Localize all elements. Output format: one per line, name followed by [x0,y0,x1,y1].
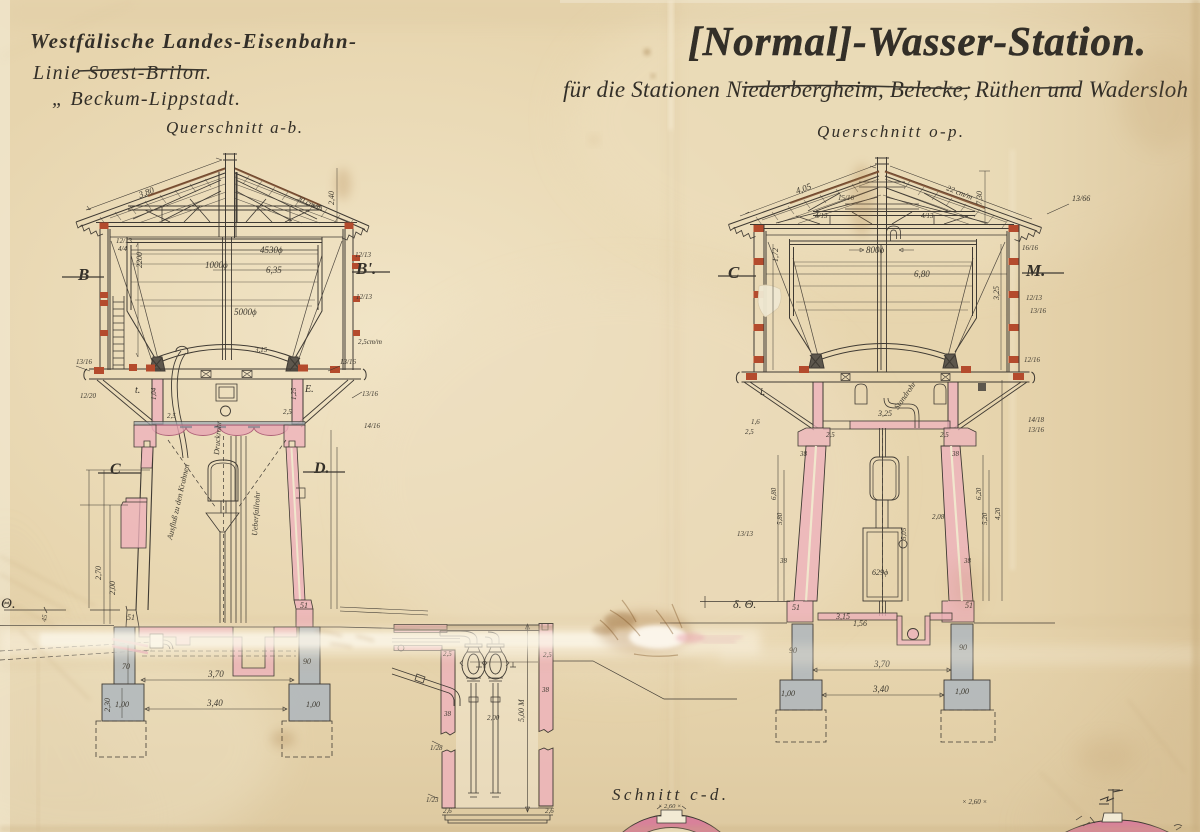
svg-text:4530ϕ: 4530ϕ [260,245,283,255]
svg-text:2,00: 2,00 [108,581,117,595]
svg-text:3,25: 3,25 [992,286,1001,301]
svg-text:13/16: 13/16 [1028,426,1044,434]
svg-text:2,6: 2,6 [545,807,554,815]
svg-text:38: 38 [443,710,452,718]
svg-text:38: 38 [779,557,788,565]
svg-text:13/16: 13/16 [362,390,378,398]
svg-text:1,25: 1,25 [290,387,298,400]
svg-text:5,00 M: 5,00 M [517,698,526,722]
svg-text:6,80: 6,80 [770,487,778,500]
svg-text:1,72: 1,72 [771,248,780,262]
svg-text:1/28: 1/28 [430,744,443,752]
svg-text:13/16: 13/16 [340,358,356,366]
svg-text:16/16: 16/16 [1022,244,1038,252]
svg-text:3,40: 3,40 [206,698,223,708]
svg-text:4/13: 4/13 [921,212,934,220]
svg-text:Bʹ.: Bʹ. [355,259,376,278]
svg-text:629ϕ: 629ϕ [872,568,888,577]
svg-text:12/13: 12/13 [116,237,132,245]
svg-text:12/13: 12/13 [355,251,371,259]
svg-text:51: 51 [792,603,800,612]
svg-text:3,15: 3,15 [254,346,268,354]
svg-text:6,20: 6,20 [975,487,983,500]
svg-text:4,20: 4,20 [994,507,1002,520]
svg-text:5000ϕ: 5000ϕ [234,307,257,317]
svg-text:12/13: 12/13 [1026,294,1042,302]
svg-text:2,00: 2,00 [487,714,500,722]
svg-text:δ. Θ.: δ. Θ. [733,597,756,611]
svg-text:D.: D. [313,460,330,477]
svg-text:2,40: 2,40 [327,191,336,205]
svg-text:38: 38 [951,450,960,458]
svg-text:13/66: 13/66 [1072,194,1090,203]
svg-text:6,80: 6,80 [914,269,930,279]
svg-text:2,5: 2,5 [826,431,835,439]
svg-text:5,20: 5,20 [981,512,989,525]
svg-text:2,5: 2,5 [283,408,292,416]
svg-text:1,00: 1,00 [306,700,320,709]
svg-text:M.: M. [1025,261,1045,280]
svg-text:13/16: 13/16 [76,358,92,366]
svg-text:2,5: 2,5 [745,428,754,436]
svg-text:1,04: 1,04 [150,387,158,400]
svg-text:C: C [728,263,740,282]
svg-text:12/16: 12/16 [1024,356,1040,364]
svg-text:„ Beckum-Lippstadt.: „ Beckum-Lippstadt. [52,88,240,110]
svg-text:C: C [110,461,121,478]
svg-text:800ϕ: 800ϕ [866,245,885,255]
svg-text:2,70: 2,70 [94,566,103,580]
svg-text:für die Stationen Niederberghe: für die Stationen Niederbergheim, Beleck… [563,77,1188,102]
svg-text:3,40: 3,40 [872,684,889,694]
svg-text:2200: 2200 [135,252,144,268]
svg-text:Westfälische Landes-Eisenbahn-: Westfälische Landes-Eisenbahn- [30,29,356,53]
svg-text:2,6: 2,6 [443,807,452,815]
svg-text:2,08: 2,08 [932,513,945,521]
svg-text:E.: E. [304,384,314,395]
svg-text:Querschnitt o-p.: Querschnitt o-p. [817,122,963,141]
svg-text:5,80: 5,80 [776,512,784,525]
svg-text:13/13: 13/13 [737,530,753,538]
svg-text:1000ϕ: 1000ϕ [205,260,228,270]
svg-text:14/18: 14/18 [1028,416,1044,424]
svg-text:1,00: 1,00 [781,689,795,698]
svg-text:5,05: 5,05 [900,527,908,540]
svg-text:38: 38 [541,686,550,694]
svg-text:12/20: 12/20 [80,392,96,400]
svg-text:2,30: 2,30 [103,698,112,712]
svg-text:B: B [77,265,89,284]
svg-text:51: 51 [300,601,308,610]
svg-text:i.: i. [760,387,765,398]
svg-text:4/13: 4/13 [815,212,828,220]
svg-text:2,5: 2,5 [167,412,176,420]
svg-text:2,5: 2,5 [940,431,949,439]
svg-text:t.: t. [135,385,140,396]
svg-text:3,70: 3,70 [207,669,224,679]
svg-text:× 2,60 ×: × 2,60 × [962,798,987,806]
svg-text:4/4: 4/4 [118,245,127,253]
svg-text:12/13: 12/13 [356,293,372,301]
svg-text:× 2,60 ×: × 2,60 × [658,803,681,810]
svg-text:3,25: 3,25 [877,409,892,418]
svg-text:1,6: 1,6 [751,418,760,426]
svg-text:7,30: 7,30 [975,191,984,205]
svg-text:2,5cm/m: 2,5cm/m [358,338,382,346]
svg-text:14/16: 14/16 [364,422,380,430]
svg-text:13/16: 13/16 [1030,307,1046,315]
svg-text:Linie Soest-Brilon.: Linie Soest-Brilon. [32,62,211,84]
svg-text:1/23: 1/23 [426,796,439,804]
svg-text:38: 38 [799,450,808,458]
svg-text:[Normal]-Wasser-Station.: [Normal]-Wasser-Station. [688,18,1146,64]
svg-text:1,00: 1,00 [955,687,969,696]
